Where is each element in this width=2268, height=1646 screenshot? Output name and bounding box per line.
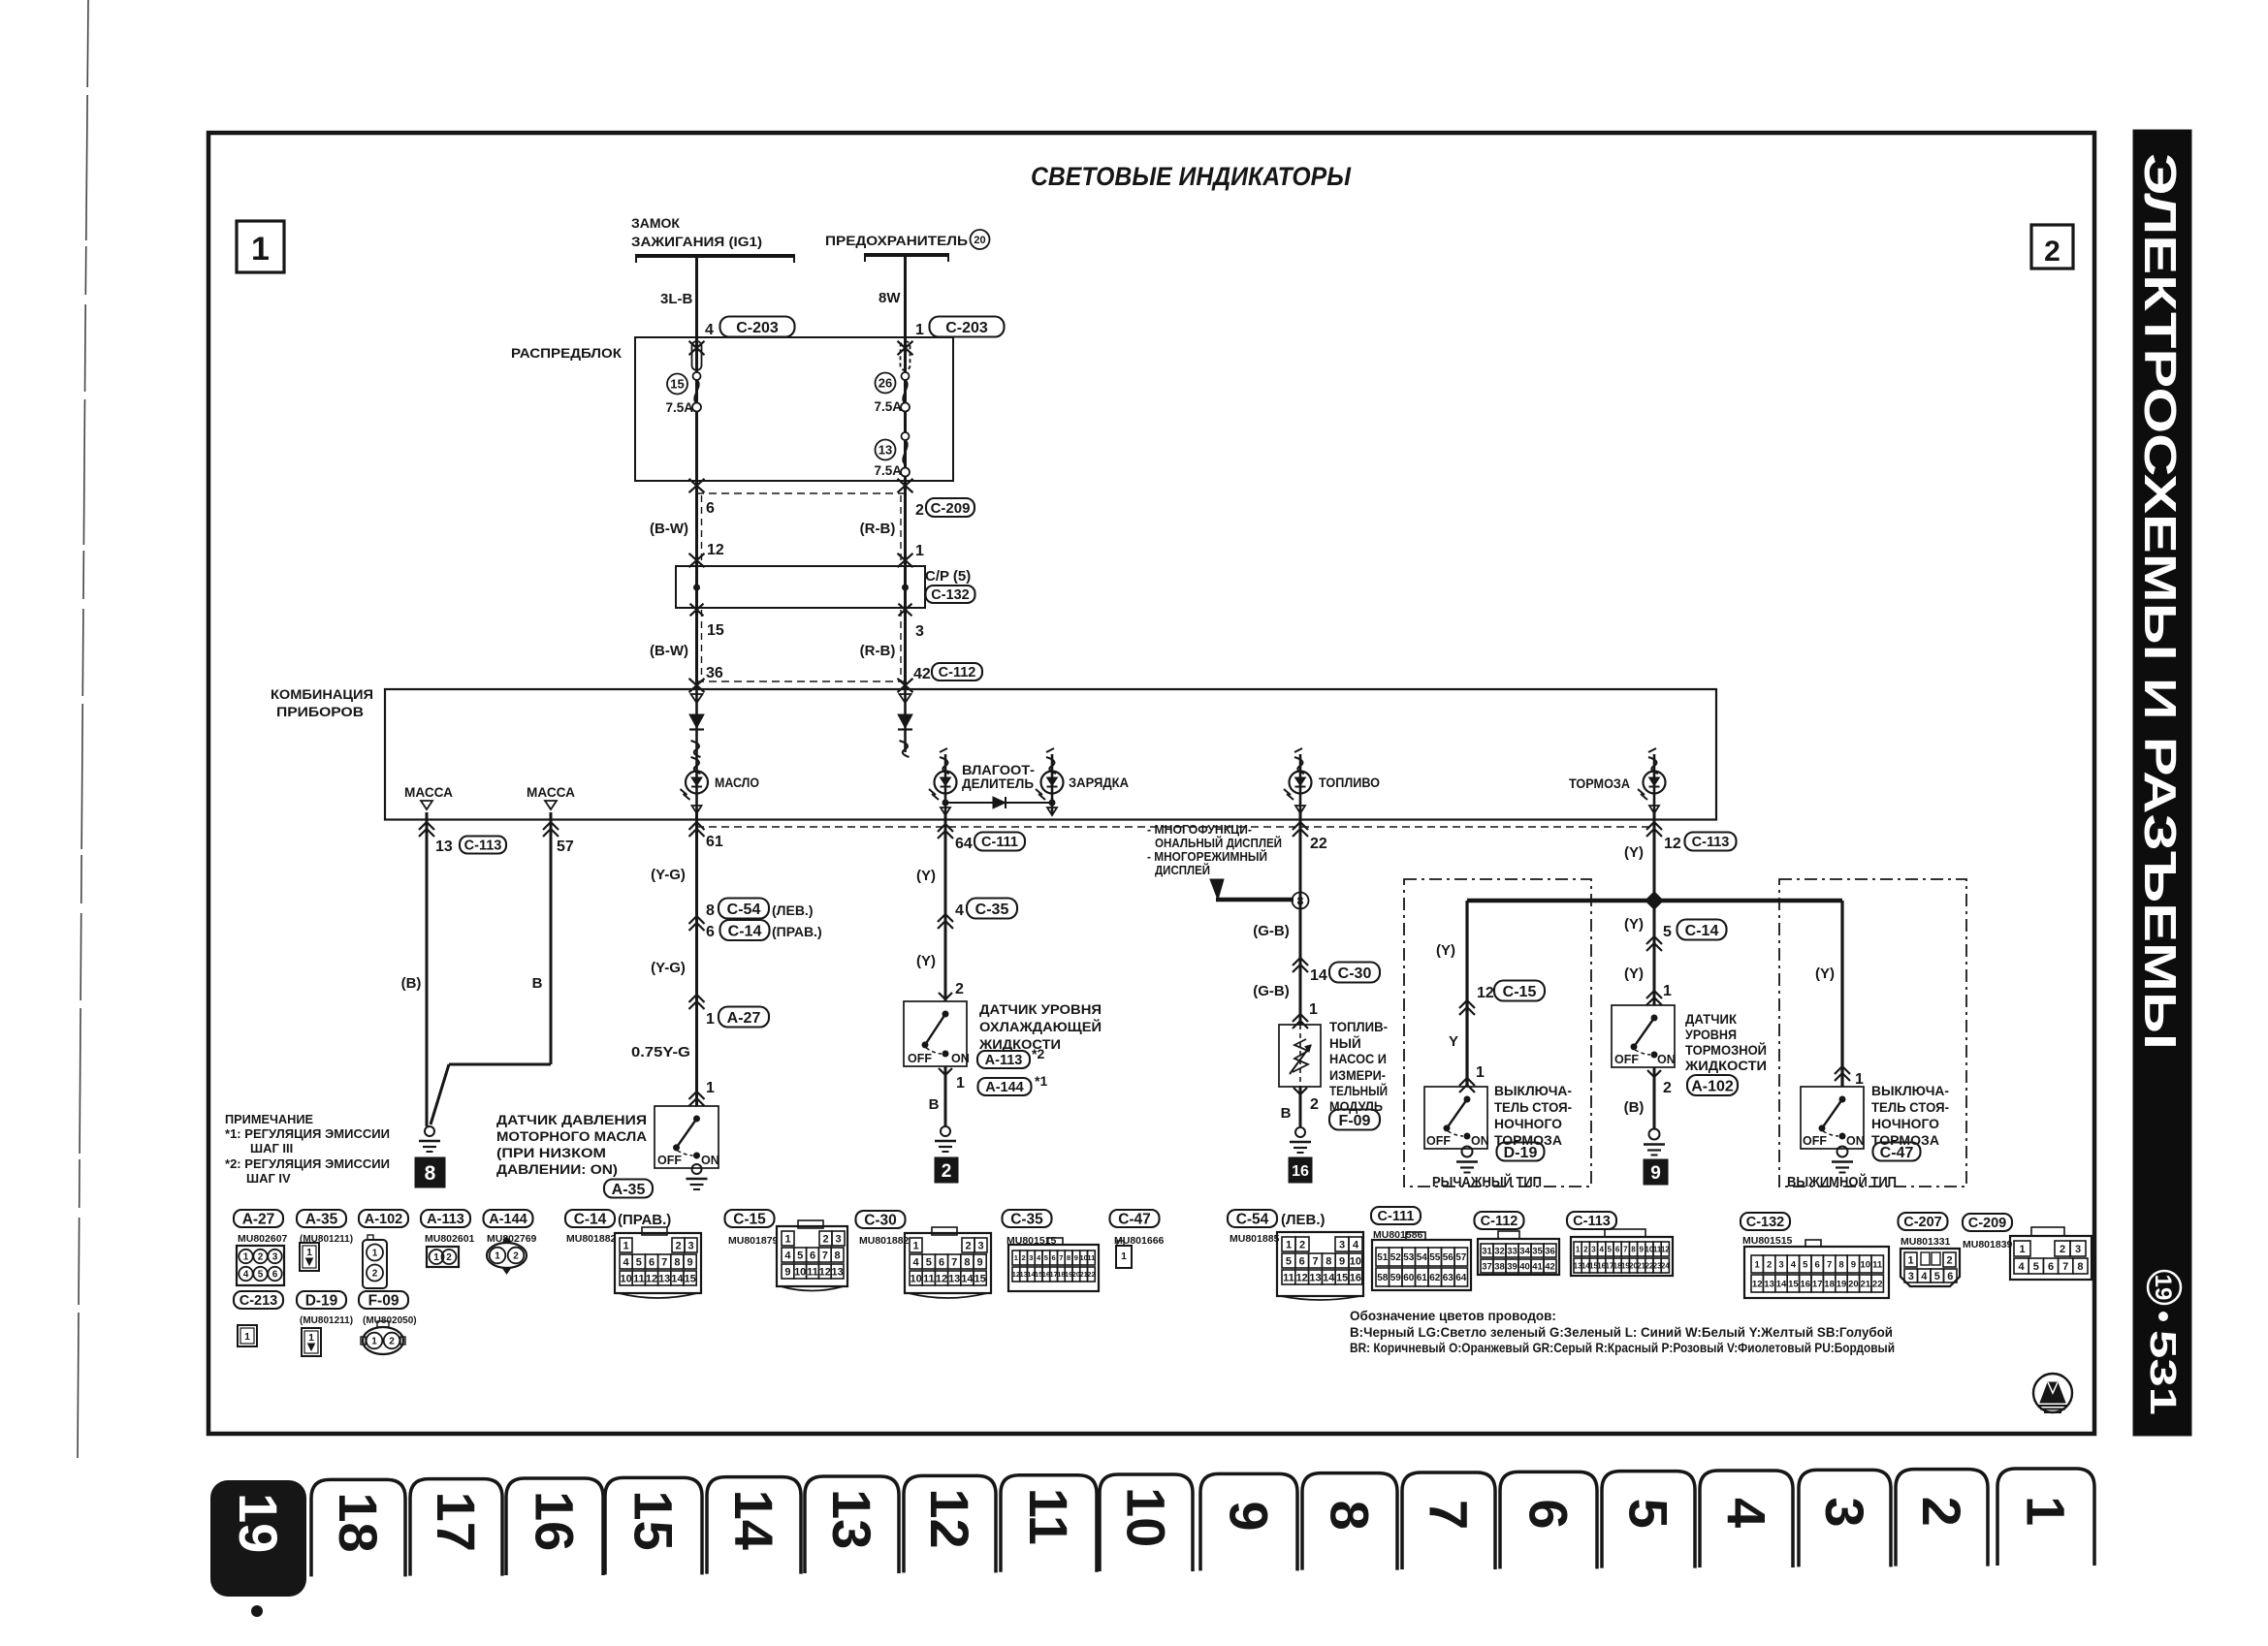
svg-text:9: 9 bbox=[687, 1256, 693, 1268]
svg-text:Обозначение цветов проводов:: Обозначение цветов проводов: bbox=[1350, 1309, 1556, 1323]
svg-text:64: 64 bbox=[955, 836, 973, 852]
svg-text:- МНОГОФУНКЦИ-: - МНОГОФУНКЦИ- bbox=[1147, 823, 1252, 837]
svg-text:3: 3 bbox=[1339, 1239, 1345, 1250]
svg-text:10: 10 bbox=[1350, 1255, 1361, 1267]
svg-text:*1: РЕГУЛЯЦИЯ ЭМИССИИ: *1: РЕГУЛЯЦИЯ ЭМИССИИ bbox=[225, 1126, 390, 1141]
svg-text:15: 15 bbox=[1788, 1279, 1799, 1289]
svg-text:5: 5 bbox=[1044, 1253, 1048, 1262]
svg-text:5: 5 bbox=[926, 1256, 932, 1268]
svg-text:55: 55 bbox=[1429, 1252, 1441, 1263]
svg-text:1: 1 bbox=[956, 1075, 965, 1092]
svg-text:BR: Коричневый O:Оранжевый GR:: BR: Коричневый O:Оранжевый GR:Серый R:Кр… bbox=[1350, 1341, 1895, 1355]
svg-text:C-112: C-112 bbox=[939, 665, 976, 681]
svg-text:19: 19 bbox=[2150, 1275, 2176, 1301]
svg-text:1: 1 bbox=[1855, 1071, 1864, 1088]
svg-text:A-113: A-113 bbox=[985, 1053, 1023, 1068]
svg-text:9: 9 bbox=[784, 1266, 790, 1278]
svg-text:(B-W): (B-W) bbox=[650, 521, 688, 537]
svg-text:MU801515: MU801515 bbox=[1742, 1235, 1793, 1247]
svg-text:ТОПЛИВО: ТОПЛИВО bbox=[1319, 775, 1380, 790]
svg-text:1: 1 bbox=[2019, 1244, 2025, 1255]
svg-text:OFF: OFF bbox=[657, 1154, 682, 1167]
svg-text:6: 6 bbox=[1052, 1253, 1056, 1262]
svg-text:C-207: C-207 bbox=[1903, 1215, 1942, 1230]
svg-text:4: 4 bbox=[2019, 1261, 2026, 1273]
svg-text:7: 7 bbox=[951, 1256, 957, 1268]
svg-text:9: 9 bbox=[1650, 1163, 1661, 1184]
svg-text:14: 14 bbox=[671, 1273, 684, 1284]
svg-text:2: 2 bbox=[258, 1252, 264, 1263]
svg-text:2: 2 bbox=[1583, 1245, 1588, 1253]
svg-text:3L-B: 3L-B bbox=[660, 291, 693, 307]
svg-text:6: 6 bbox=[939, 1256, 944, 1268]
svg-text:63: 63 bbox=[1443, 1273, 1454, 1283]
svg-text:14: 14 bbox=[1323, 1272, 1335, 1283]
svg-text:(Y-G): (Y-G) bbox=[651, 960, 686, 976]
svg-text:(ЛЕВ.): (ЛЕВ.) bbox=[1281, 1212, 1326, 1228]
svg-text:6: 6 bbox=[1299, 1255, 1305, 1267]
svg-text:ТОРМОЗА: ТОРМОЗА bbox=[1569, 776, 1630, 791]
svg-text:(Y): (Y) bbox=[1815, 965, 1835, 982]
svg-text:C-209: C-209 bbox=[1968, 1216, 2007, 1231]
svg-text:OFF: OFF bbox=[1803, 1134, 1827, 1148]
svg-text:1: 1 bbox=[623, 1240, 628, 1251]
svg-text:16: 16 bbox=[1350, 1272, 1361, 1283]
svg-text:ТЕЛЬНЫЙ: ТЕЛЬНЫЙ bbox=[1329, 1084, 1388, 1098]
svg-text:D-19: D-19 bbox=[1504, 1145, 1538, 1161]
svg-text:(ПРАВ.): (ПРАВ.) bbox=[618, 1212, 671, 1228]
svg-text:6: 6 bbox=[2048, 1261, 2054, 1273]
svg-text:57: 57 bbox=[557, 839, 574, 855]
svg-text:C-15: C-15 bbox=[1503, 984, 1537, 1000]
svg-text:ТОПЛИВ-: ТОПЛИВ- bbox=[1329, 1020, 1388, 1034]
svg-text:11: 11 bbox=[1087, 1253, 1095, 1262]
svg-text:ДАТЧИК ДАВЛЕНИЯ: ДАТЧИК ДАВЛЕНИЯ bbox=[496, 1112, 647, 1127]
svg-text:C-35: C-35 bbox=[1010, 1212, 1043, 1228]
svg-text:8: 8 bbox=[2077, 1261, 2083, 1273]
svg-text:C-113: C-113 bbox=[1573, 1214, 1611, 1229]
svg-text:10: 10 bbox=[794, 1266, 806, 1278]
svg-text:19: 19 bbox=[1837, 1279, 1847, 1289]
svg-text:13: 13 bbox=[878, 443, 892, 458]
svg-text:12: 12 bbox=[707, 542, 724, 558]
svg-text:2: 2 bbox=[446, 1252, 452, 1263]
svg-text:8: 8 bbox=[674, 1256, 680, 1268]
svg-text:C-35: C-35 bbox=[975, 902, 1009, 918]
svg-text:1: 1 bbox=[244, 1331, 250, 1343]
svg-text:MU801882: MU801882 bbox=[566, 1233, 617, 1245]
svg-text:5: 5 bbox=[1608, 1245, 1613, 1253]
svg-text:C-30: C-30 bbox=[864, 1213, 897, 1229]
svg-text:15: 15 bbox=[623, 1490, 685, 1550]
svg-text:6: 6 bbox=[272, 1270, 278, 1281]
svg-text:15: 15 bbox=[1336, 1272, 1348, 1283]
svg-text:ON: ON bbox=[1471, 1134, 1489, 1148]
svg-text:7: 7 bbox=[1827, 1259, 1832, 1270]
svg-text:C-113: C-113 bbox=[1692, 835, 1730, 850]
svg-text:C-112: C-112 bbox=[1481, 1214, 1518, 1229]
svg-text:51: 51 bbox=[1377, 1252, 1389, 1263]
svg-text:24: 24 bbox=[1661, 1261, 1670, 1270]
svg-text:4: 4 bbox=[955, 902, 964, 919]
svg-text:2: 2 bbox=[1946, 1254, 1952, 1266]
svg-text:C-209: C-209 bbox=[931, 500, 971, 517]
svg-text:C-47: C-47 bbox=[1118, 1212, 1151, 1228]
svg-text:1: 1 bbox=[1663, 983, 1672, 999]
svg-text:(Y): (Y) bbox=[916, 953, 936, 969]
svg-text:60: 60 bbox=[1403, 1273, 1415, 1283]
svg-text:5: 5 bbox=[1286, 1255, 1292, 1267]
svg-text:13: 13 bbox=[1764, 1279, 1774, 1289]
svg-text:9: 9 bbox=[1339, 1255, 1345, 1267]
svg-text:(R-B): (R-B) bbox=[860, 521, 896, 537]
svg-text:13: 13 bbox=[1309, 1272, 1321, 1283]
svg-text:4: 4 bbox=[243, 1270, 249, 1281]
svg-text:14: 14 bbox=[723, 1490, 784, 1550]
svg-text:2: 2 bbox=[955, 981, 964, 997]
svg-text:9: 9 bbox=[1074, 1253, 1078, 1262]
svg-text:14: 14 bbox=[961, 1273, 974, 1284]
svg-text:11: 11 bbox=[1018, 1488, 1079, 1545]
svg-text:5: 5 bbox=[1803, 1259, 1808, 1270]
svg-text:14: 14 bbox=[1776, 1279, 1787, 1289]
svg-text:12: 12 bbox=[1752, 1279, 1763, 1289]
svg-text:МОТОРНОГО МАСЛА: МОТОРНОГО МАСЛА bbox=[496, 1128, 647, 1144]
svg-text:MU801879: MU801879 bbox=[728, 1235, 779, 1247]
svg-text:7: 7 bbox=[1623, 1245, 1628, 1253]
svg-text:A-35: A-35 bbox=[612, 1182, 646, 1198]
svg-text:7.5A: 7.5A bbox=[665, 400, 693, 415]
svg-text:12: 12 bbox=[1477, 985, 1494, 1001]
svg-text:1: 1 bbox=[1907, 1254, 1913, 1266]
svg-text:(Y): (Y) bbox=[1624, 965, 1644, 982]
svg-text:MU801331: MU801331 bbox=[1901, 1236, 1951, 1248]
svg-text:(MU801211): (MU801211) bbox=[300, 1315, 353, 1326]
svg-text:36: 36 bbox=[1545, 1246, 1555, 1256]
svg-text:3: 3 bbox=[272, 1252, 278, 1263]
svg-text:2: 2 bbox=[1299, 1239, 1305, 1250]
svg-text:C-111: C-111 bbox=[981, 835, 1018, 850]
svg-text:C/P (5): C/P (5) bbox=[925, 568, 971, 585]
svg-text:C-213: C-213 bbox=[240, 1293, 278, 1309]
svg-text:5: 5 bbox=[1618, 1499, 1679, 1529]
svg-text:16: 16 bbox=[1801, 1279, 1811, 1289]
svg-text:42: 42 bbox=[913, 666, 931, 682]
svg-text:26: 26 bbox=[878, 376, 892, 391]
svg-text:ДИСПЛЕЙ: ДИСПЛЕЙ bbox=[1155, 863, 1210, 877]
svg-text:3: 3 bbox=[915, 623, 924, 640]
svg-text:6: 6 bbox=[1518, 1499, 1580, 1529]
svg-text:(ПРИ НИЗКОМ: (ПРИ НИЗКОМ bbox=[496, 1145, 606, 1160]
svg-text:(B-W): (B-W) bbox=[650, 643, 688, 659]
svg-text:1: 1 bbox=[912, 1240, 918, 1251]
svg-text:ЖИДКОСТИ: ЖИДКОСТИ bbox=[978, 1036, 1061, 1052]
svg-text:6: 6 bbox=[810, 1250, 815, 1261]
svg-text:1: 1 bbox=[784, 1233, 790, 1245]
svg-text:15: 15 bbox=[974, 1273, 985, 1284]
svg-text:ОХЛАЖДАЮЩЕЙ: ОХЛАЖДАЮЩЕЙ bbox=[979, 1018, 1102, 1034]
svg-text:MU802601: MU802601 bbox=[425, 1233, 475, 1245]
svg-text:61: 61 bbox=[1417, 1273, 1428, 1283]
svg-text:9: 9 bbox=[977, 1256, 983, 1268]
svg-text:12: 12 bbox=[1661, 1245, 1670, 1253]
svg-text:ЗАМОК: ЗАМОК bbox=[631, 215, 680, 231]
svg-text:C-54: C-54 bbox=[1236, 1212, 1269, 1228]
svg-text:4: 4 bbox=[1716, 1498, 1777, 1528]
svg-text:4: 4 bbox=[1353, 1239, 1359, 1250]
svg-text:4: 4 bbox=[623, 1256, 630, 1268]
svg-text:12: 12 bbox=[919, 1488, 980, 1548]
svg-text:ДАТЧИК УРОВНЯ: ДАТЧИК УРОВНЯ bbox=[979, 1001, 1102, 1017]
svg-text:8: 8 bbox=[1838, 1259, 1843, 1270]
svg-text:C-203: C-203 bbox=[945, 320, 988, 336]
svg-text:РАСПРЕДБЛОК: РАСПРЕДБЛОК bbox=[511, 345, 622, 361]
svg-text:1: 1 bbox=[372, 1249, 378, 1259]
svg-text:1: 1 bbox=[1014, 1253, 1018, 1262]
svg-text:39: 39 bbox=[1507, 1261, 1517, 1272]
svg-text:7: 7 bbox=[1419, 1500, 1480, 1530]
svg-text:A-144: A-144 bbox=[489, 1212, 527, 1227]
svg-text:32: 32 bbox=[1494, 1246, 1505, 1256]
svg-text:11: 11 bbox=[1283, 1272, 1294, 1283]
svg-text:2: 2 bbox=[675, 1240, 681, 1251]
svg-text:15: 15 bbox=[670, 377, 684, 392]
svg-text:19: 19 bbox=[228, 1493, 289, 1553]
svg-text:ЖИДКОСТИ: ЖИДКОСТИ bbox=[1684, 1058, 1767, 1073]
svg-text:OFF: OFF bbox=[1426, 1134, 1451, 1148]
svg-text:17: 17 bbox=[1812, 1279, 1823, 1289]
svg-text:C-14: C-14 bbox=[728, 923, 762, 939]
svg-text:1: 1 bbox=[1755, 1259, 1761, 1270]
svg-text:4: 4 bbox=[1921, 1271, 1928, 1282]
svg-text:15: 15 bbox=[684, 1273, 695, 1284]
svg-text:8: 8 bbox=[835, 1250, 841, 1261]
svg-text:1: 1 bbox=[706, 1080, 715, 1096]
svg-text:40: 40 bbox=[1519, 1261, 1530, 1272]
svg-text:11: 11 bbox=[1872, 1259, 1883, 1270]
svg-text:Y: Y bbox=[1449, 1033, 1458, 1050]
svg-text:6: 6 bbox=[649, 1256, 655, 1268]
svg-text:10: 10 bbox=[1861, 1259, 1871, 1270]
svg-text:ТЕЛЬ СТОЯ-: ТЕЛЬ СТОЯ- bbox=[1871, 1099, 1949, 1115]
svg-text:МАССА: МАССА bbox=[527, 784, 575, 800]
svg-text:1: 1 bbox=[243, 1252, 249, 1263]
svg-text:8: 8 bbox=[1067, 1253, 1070, 1262]
svg-text:A-35: A-35 bbox=[305, 1212, 338, 1228]
svg-text:3: 3 bbox=[1778, 1259, 1783, 1270]
svg-text:1: 1 bbox=[371, 1337, 377, 1347]
svg-text:2: 2 bbox=[513, 1251, 519, 1262]
svg-text:3: 3 bbox=[2075, 1244, 2081, 1255]
svg-text:2: 2 bbox=[2044, 236, 2060, 268]
svg-text:1: 1 bbox=[1576, 1245, 1581, 1253]
svg-text:41: 41 bbox=[1532, 1261, 1543, 1272]
svg-text:F-09: F-09 bbox=[368, 1293, 399, 1310]
svg-text:MU801839: MU801839 bbox=[1963, 1239, 2013, 1250]
svg-text:3: 3 bbox=[1908, 1271, 1914, 1282]
svg-text:31: 31 bbox=[1482, 1246, 1492, 1256]
svg-text:D-19: D-19 bbox=[305, 1293, 338, 1310]
svg-text:15: 15 bbox=[707, 622, 724, 639]
svg-text:2: 2 bbox=[822, 1233, 828, 1245]
svg-text:2: 2 bbox=[942, 1161, 952, 1182]
svg-text:10: 10 bbox=[1116, 1487, 1177, 1547]
svg-text:1: 1 bbox=[1476, 1064, 1485, 1081]
svg-text:16: 16 bbox=[525, 1491, 586, 1551]
svg-text:37: 37 bbox=[1482, 1261, 1492, 1272]
svg-text:ON: ON bbox=[1657, 1053, 1676, 1066]
svg-text:(G-B): (G-B) bbox=[1253, 923, 1290, 939]
svg-text:61: 61 bbox=[706, 834, 723, 850]
svg-text:58: 58 bbox=[1377, 1273, 1389, 1283]
svg-text:12: 12 bbox=[1664, 836, 1681, 852]
svg-text:6: 6 bbox=[706, 924, 715, 940]
svg-text:A-27: A-27 bbox=[242, 1212, 275, 1228]
svg-text:1: 1 bbox=[1309, 1001, 1318, 1018]
svg-text:ШАГ IV: ШАГ IV bbox=[246, 1171, 291, 1186]
svg-text:7.5A: 7.5A bbox=[874, 463, 902, 478]
svg-text:B: B bbox=[929, 1096, 940, 1113]
svg-text:MU801885: MU801885 bbox=[1230, 1233, 1280, 1245]
svg-text:7: 7 bbox=[2062, 1261, 2068, 1273]
svg-text:A-113: A-113 bbox=[427, 1212, 464, 1227]
svg-text:ЗАЖИГАНИЯ (IG1): ЗАЖИГАНИЯ (IG1) bbox=[631, 234, 762, 249]
svg-text:1: 1 bbox=[915, 322, 924, 338]
svg-text:ТЕЛЬ СТОЯ-: ТЕЛЬ СТОЯ- bbox=[1494, 1099, 1572, 1115]
svg-text:C-132: C-132 bbox=[1746, 1215, 1785, 1230]
svg-text:(B): (B) bbox=[1624, 1099, 1645, 1116]
svg-text:ВЫЖИМНОЙ ТИП: ВЫЖИМНОЙ ТИП bbox=[1787, 1173, 1897, 1190]
svg-text:11: 11 bbox=[923, 1273, 935, 1284]
svg-text:3: 3 bbox=[1591, 1245, 1596, 1253]
svg-text:5: 5 bbox=[258, 1270, 264, 1281]
svg-text:ON: ON bbox=[951, 1052, 970, 1065]
svg-text:A-144: A-144 bbox=[985, 1080, 1024, 1095]
svg-text:22: 22 bbox=[1872, 1279, 1883, 1289]
svg-text:20: 20 bbox=[974, 235, 985, 246]
svg-text:ДАВЛЕНИИ: ON): ДАВЛЕНИИ: ON) bbox=[496, 1161, 618, 1177]
svg-text:57: 57 bbox=[1455, 1252, 1467, 1263]
svg-text:35: 35 bbox=[1532, 1246, 1543, 1256]
svg-text:7.5A: 7.5A bbox=[874, 399, 902, 414]
svg-text:C-54: C-54 bbox=[727, 902, 761, 918]
svg-text:59: 59 bbox=[1390, 1273, 1402, 1283]
svg-text:20: 20 bbox=[1848, 1279, 1859, 1289]
svg-text:ВЛАГООТ-: ВЛАГООТ- bbox=[962, 763, 1035, 777]
svg-text:ON: ON bbox=[701, 1154, 719, 1167]
svg-text:ПРЕДОХРАНИТЕЛЬ: ПРЕДОХРАНИТЕЛЬ bbox=[825, 233, 968, 248]
svg-text:8: 8 bbox=[1320, 1501, 1381, 1531]
svg-text:B: B bbox=[532, 975, 543, 992]
svg-text:MU801882: MU801882 bbox=[859, 1235, 910, 1247]
svg-text:7: 7 bbox=[1312, 1255, 1318, 1267]
svg-text:НОЧНОГО: НОЧНОГО bbox=[1871, 1116, 1939, 1131]
svg-text:52: 52 bbox=[1390, 1252, 1402, 1263]
svg-text:3: 3 bbox=[977, 1240, 983, 1251]
svg-text:(ПРАВ.): (ПРАВ.) bbox=[772, 924, 822, 939]
svg-text:12: 12 bbox=[646, 1273, 657, 1284]
svg-text:(Y): (Y) bbox=[916, 868, 936, 884]
svg-text:- МНОГОРЕЖИМНЫЙ: - МНОГОРЕЖИМНЫЙ bbox=[1147, 849, 1267, 864]
svg-text:12: 12 bbox=[1296, 1272, 1308, 1283]
svg-text:НЫЙ: НЫЙ bbox=[1329, 1036, 1361, 1051]
svg-text:6: 6 bbox=[706, 500, 715, 517]
svg-text:0.75Y-G: 0.75Y-G bbox=[631, 1044, 690, 1060]
svg-text:C-132: C-132 bbox=[931, 587, 970, 603]
svg-text:3: 3 bbox=[1029, 1253, 1033, 1262]
svg-text:64: 64 bbox=[1455, 1273, 1467, 1283]
svg-text:21: 21 bbox=[1861, 1279, 1871, 1289]
svg-text:ОНАЛЬНЫЙ ДИСПЛЕЙ: ОНАЛЬНЫЙ ДИСПЛЕЙ bbox=[1155, 836, 1282, 850]
svg-text:3: 3 bbox=[687, 1240, 693, 1251]
svg-text:2: 2 bbox=[965, 1240, 971, 1251]
svg-text:9: 9 bbox=[1851, 1259, 1856, 1270]
svg-text:C-111: C-111 bbox=[1378, 1209, 1415, 1224]
svg-text:1: 1 bbox=[308, 1332, 314, 1344]
svg-text:ШАГ III: ШАГ III bbox=[250, 1141, 293, 1155]
svg-text:56: 56 bbox=[1443, 1252, 1454, 1263]
svg-text:36: 36 bbox=[706, 665, 723, 681]
svg-text:C-14: C-14 bbox=[574, 1212, 607, 1228]
svg-text:10: 10 bbox=[910, 1273, 921, 1284]
svg-text:C-14: C-14 bbox=[1685, 923, 1719, 939]
svg-text:ПРИБОРОВ: ПРИБОРОВ bbox=[276, 704, 364, 719]
svg-text:ТОРМОЗНОЙ: ТОРМОЗНОЙ bbox=[1685, 1041, 1767, 1058]
svg-text:НОЧНОГО: НОЧНОГО bbox=[1494, 1116, 1562, 1131]
svg-text:16: 16 bbox=[1292, 1163, 1309, 1180]
svg-text:5: 5 bbox=[636, 1256, 642, 1268]
svg-text:1: 1 bbox=[915, 543, 924, 559]
svg-text:4: 4 bbox=[913, 1256, 920, 1268]
svg-text:54: 54 bbox=[1417, 1252, 1428, 1263]
svg-text:(Y): (Y) bbox=[1624, 844, 1644, 861]
svg-text:4: 4 bbox=[705, 322, 714, 338]
svg-text:10: 10 bbox=[620, 1273, 631, 1284]
svg-text:14: 14 bbox=[1310, 967, 1327, 984]
svg-text:13: 13 bbox=[658, 1273, 670, 1284]
svg-text:7: 7 bbox=[1059, 1253, 1063, 1262]
svg-text:62: 62 bbox=[1429, 1273, 1441, 1283]
svg-text:A-102: A-102 bbox=[365, 1212, 403, 1227]
svg-text:4: 4 bbox=[1599, 1245, 1604, 1253]
svg-text:3: 3 bbox=[835, 1233, 841, 1245]
svg-text:1: 1 bbox=[706, 1011, 715, 1028]
svg-text:1: 1 bbox=[495, 1251, 500, 1262]
svg-text:ПРИМЕЧАНИЕ: ПРИМЕЧАНИЕ bbox=[225, 1112, 313, 1126]
svg-text:(R-B): (R-B) bbox=[860, 643, 896, 659]
svg-text:B: B bbox=[1281, 1105, 1292, 1122]
svg-text:A-27: A-27 bbox=[727, 1010, 761, 1027]
svg-text:МАССА: МАССА bbox=[404, 784, 453, 800]
svg-text:8: 8 bbox=[964, 1256, 970, 1268]
svg-text:2: 2 bbox=[1911, 1497, 1972, 1527]
svg-text:ЭЛЕКТРОСХЕМЫ И РАЗЪЕМЫ: ЭЛЕКТРОСХЕМЫ И РАЗЪЕМЫ bbox=[2135, 153, 2186, 1050]
svg-text:34: 34 bbox=[1519, 1246, 1530, 1256]
svg-text:ЗАРЯДКА: ЗАРЯДКА bbox=[1069, 775, 1129, 790]
svg-text:13: 13 bbox=[821, 1489, 882, 1549]
svg-text:7: 7 bbox=[661, 1256, 667, 1268]
svg-text:38: 38 bbox=[1494, 1261, 1505, 1272]
svg-text:11: 11 bbox=[807, 1266, 818, 1278]
svg-text:КОМБИНАЦИЯ: КОМБИНАЦИЯ bbox=[271, 686, 373, 702]
svg-text:(ЛЕВ.): (ЛЕВ.) bbox=[772, 902, 814, 918]
svg-text:5: 5 bbox=[797, 1250, 803, 1261]
svg-text:8: 8 bbox=[425, 1162, 436, 1185]
svg-text:11: 11 bbox=[633, 1273, 645, 1284]
svg-text:8: 8 bbox=[1326, 1255, 1331, 1267]
svg-text:2: 2 bbox=[915, 502, 924, 519]
svg-text:12: 12 bbox=[819, 1266, 831, 1278]
